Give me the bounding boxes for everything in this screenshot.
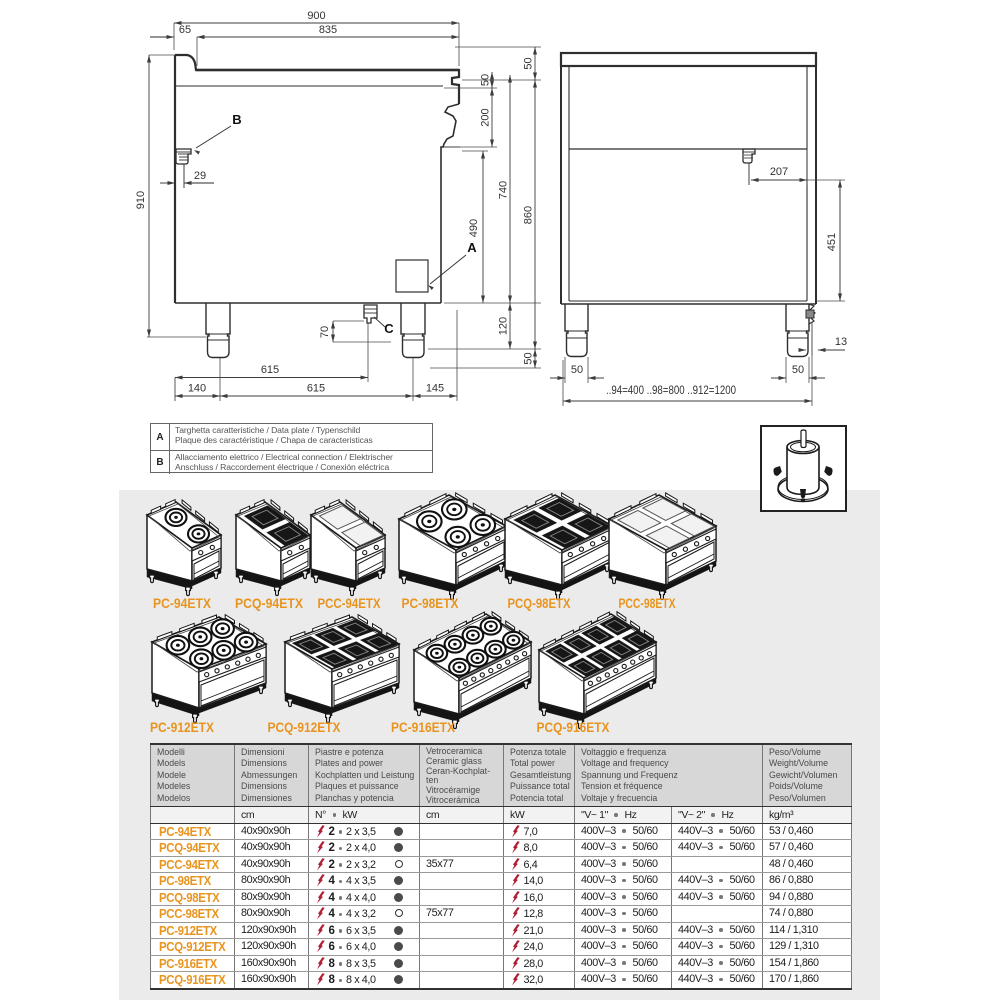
svg-text:145: 145 (426, 383, 444, 395)
svg-text:50: 50 (571, 364, 583, 376)
svg-text:50: 50 (792, 364, 804, 376)
svg-text:900: 900 (307, 10, 325, 22)
svg-text:615: 615 (307, 383, 325, 395)
svg-text:50: 50 (523, 57, 535, 69)
svg-text:PCQ-916ETX: PCQ-916ETX (537, 720, 610, 735)
svg-text:13: 13 (835, 336, 847, 348)
svg-text:PC-94ETX: PC-94ETX (153, 596, 211, 611)
svg-text:PC-912ETX: PC-912ETX (150, 720, 214, 735)
svg-text:C: C (384, 321, 394, 336)
svg-text:PCQ-98ETX: PCQ-98ETX (508, 596, 571, 611)
svg-text:PCC-94ETX: PCC-94ETX (318, 596, 381, 611)
svg-text:615: 615 (261, 364, 279, 376)
svg-text:50: 50 (523, 352, 535, 364)
svg-text:65: 65 (179, 24, 191, 36)
svg-text:A: A (467, 240, 477, 255)
svg-text:50: 50 (480, 74, 492, 86)
svg-text:860: 860 (523, 206, 535, 224)
svg-text:PC-916ETX: PC-916ETX (391, 720, 455, 735)
svg-text:..94=400 ..98=800 ..912=1200: ..94=400 ..98=800 ..912=1200 (606, 385, 736, 397)
svg-text:29: 29 (194, 170, 206, 182)
svg-text:120: 120 (498, 317, 510, 335)
svg-text:207: 207 (770, 166, 788, 178)
svg-text:451: 451 (826, 233, 838, 251)
svg-text:PCQ-912ETX: PCQ-912ETX (268, 720, 341, 735)
svg-text:PCQ-94ETX: PCQ-94ETX (235, 596, 303, 611)
svg-text:140: 140 (188, 383, 206, 395)
svg-text:PC-98ETX: PC-98ETX (402, 596, 459, 611)
svg-text:835: 835 (319, 24, 337, 36)
svg-text:490: 490 (468, 219, 480, 237)
svg-text:PCC-98ETX: PCC-98ETX (619, 596, 676, 611)
svg-text:B: B (232, 112, 241, 127)
svg-text:70: 70 (319, 326, 331, 338)
svg-text:910: 910 (135, 191, 147, 209)
svg-text:200: 200 (480, 108, 492, 126)
svg-text:740: 740 (498, 181, 510, 199)
